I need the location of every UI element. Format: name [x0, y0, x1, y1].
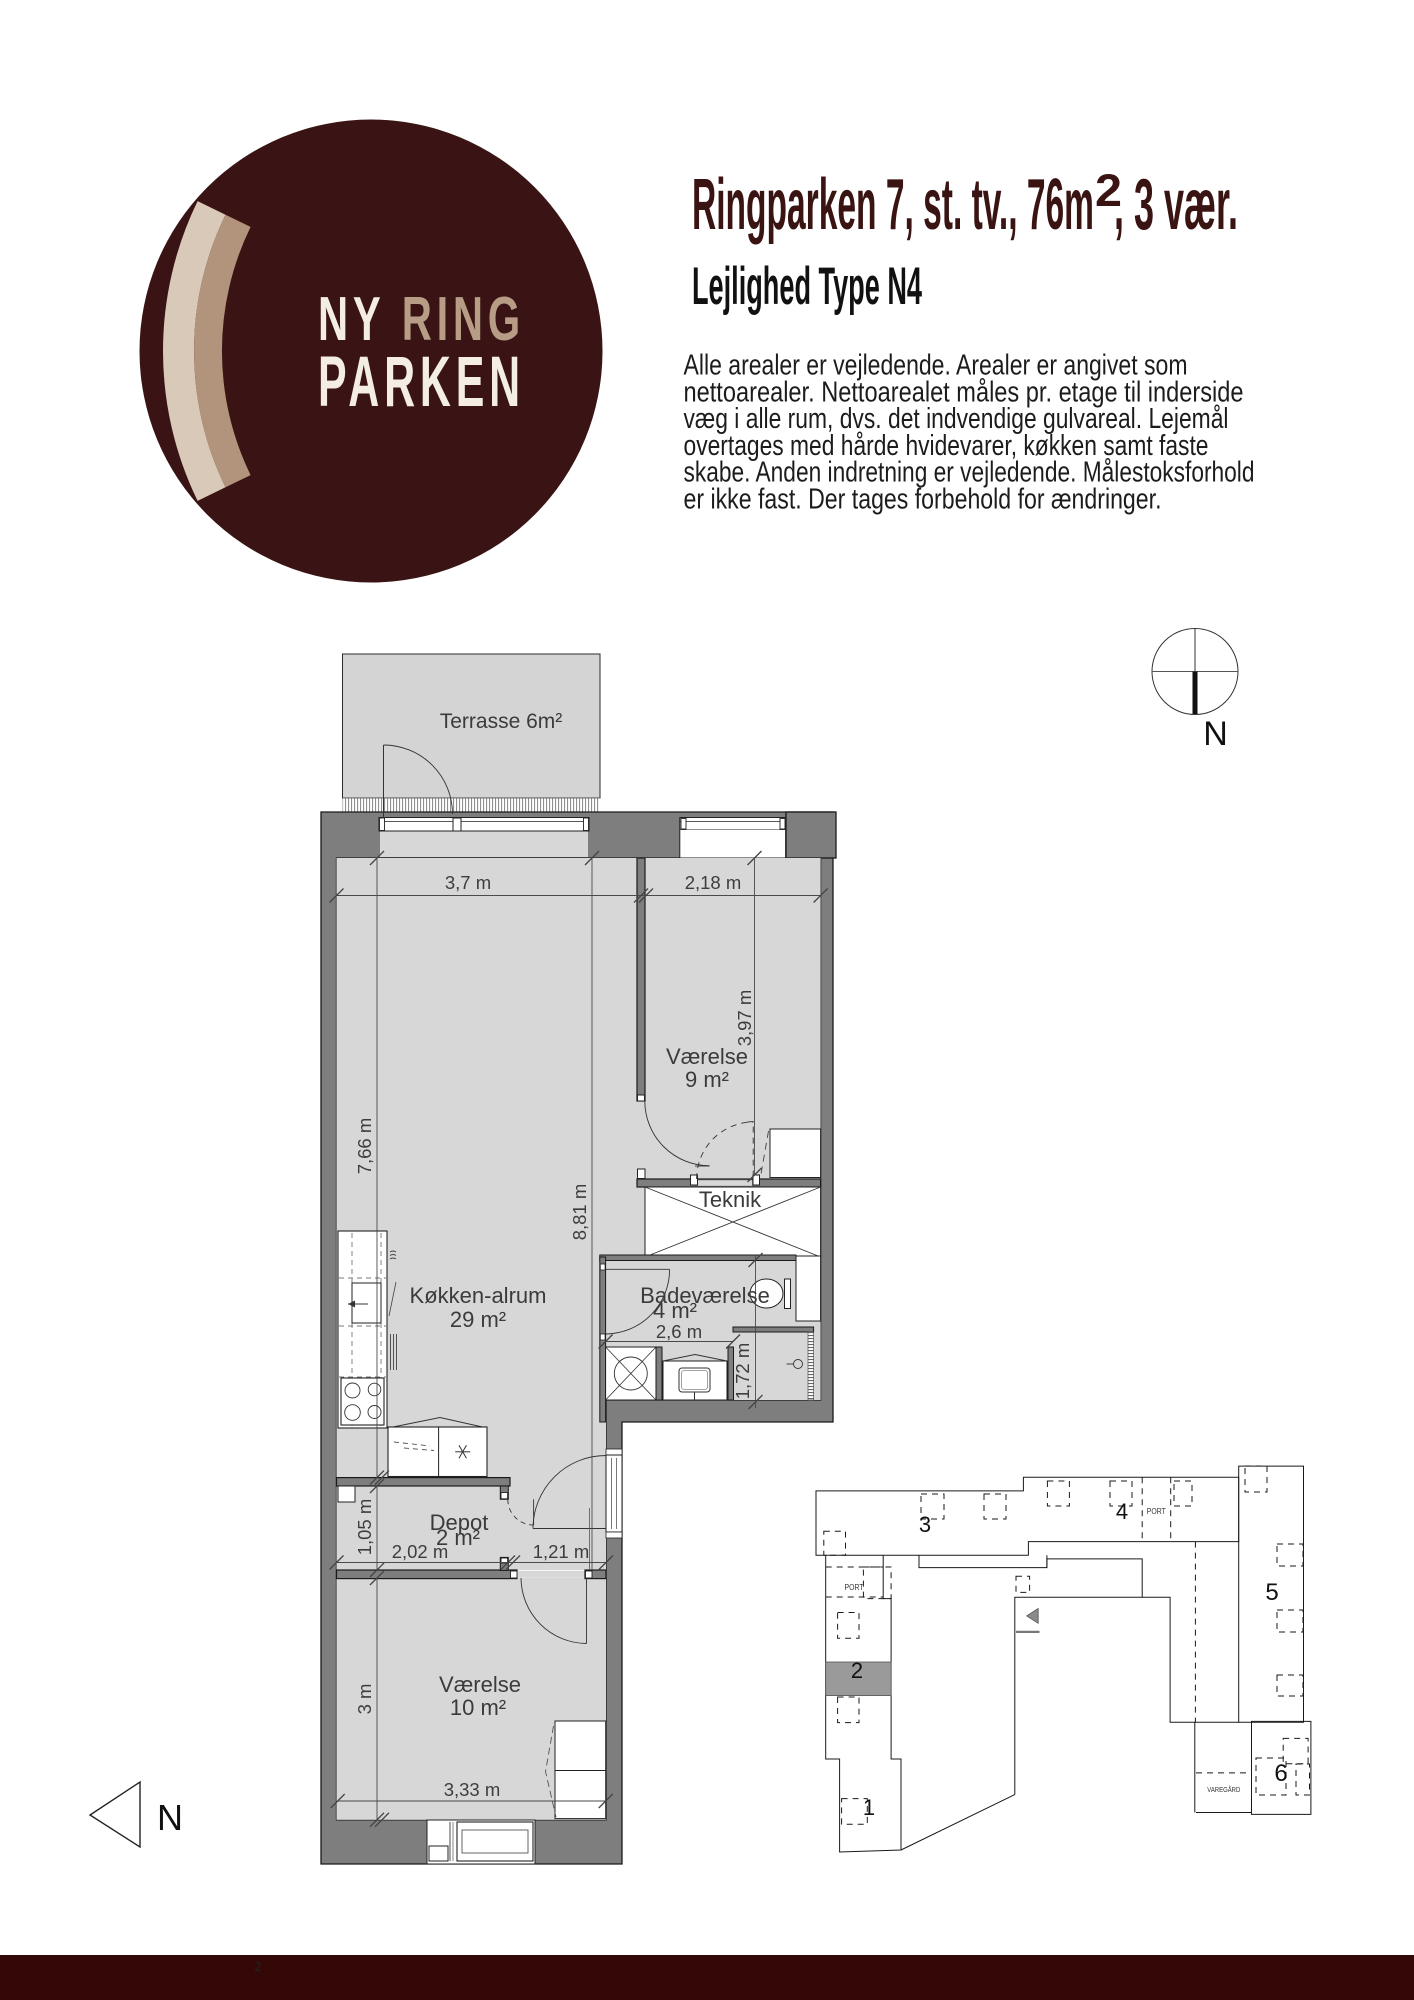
svg-text:3,33 m: 3,33 m: [444, 1779, 501, 1800]
svg-text:Terrasse 6m²: Terrasse 6m²: [440, 710, 563, 733]
svg-text:Teknik: Teknik: [699, 1187, 762, 1212]
svg-text:6: 6: [1274, 1760, 1287, 1787]
svg-text:4 m²: 4 m²: [653, 1298, 697, 1323]
svg-text:2: 2: [851, 1658, 863, 1683]
svg-text:PORT: PORT: [1147, 1507, 1166, 1516]
svg-text:1,72 m: 1,72 m: [732, 1343, 753, 1400]
svg-text:2: 2: [254, 1959, 261, 1974]
svg-text:Værelse: Værelse: [666, 1044, 748, 1069]
svg-text:7,66 m: 7,66 m: [354, 1118, 375, 1175]
svg-text:3: 3: [919, 1512, 931, 1537]
svg-text:2,6 m: 2,6 m: [656, 1321, 702, 1342]
svg-text:3,97 m: 3,97 m: [734, 990, 755, 1047]
svg-text:8,81 m: 8,81 m: [569, 1184, 590, 1241]
svg-text:5: 5: [1265, 1579, 1278, 1606]
svg-text:1,21 m: 1,21 m: [533, 1541, 590, 1562]
svg-text:, 3 vær.: , 3 vær.: [1114, 165, 1238, 245]
svg-text:1,05 m: 1,05 m: [354, 1499, 375, 1556]
svg-text:Ringparken 7, st. tv., 76m: Ringparken 7, st. tv., 76m: [692, 165, 1094, 245]
svg-text:3,7 m: 3,7 m: [445, 872, 491, 893]
svg-text:29 m²: 29 m²: [450, 1307, 506, 1332]
svg-text:3 m: 3 m: [354, 1684, 375, 1715]
svg-text:PORT: PORT: [845, 1583, 864, 1592]
svg-text:N: N: [1203, 715, 1228, 753]
svg-text:PARKEN: PARKEN: [318, 343, 525, 422]
svg-text:Køkken-alrum: Køkken-alrum: [410, 1283, 547, 1308]
svg-text:er ikke fast. Der tages forbeh: er ikke fast. Der tages forbehold for æn…: [684, 484, 1162, 516]
svg-text:2 m²: 2 m²: [436, 1525, 480, 1550]
svg-text:2,18 m: 2,18 m: [685, 872, 742, 893]
svg-text:1: 1: [863, 1795, 875, 1820]
svg-text:9 m²: 9 m²: [685, 1067, 729, 1092]
svg-text:N: N: [157, 1797, 183, 1838]
svg-text:Lejlighed Type N4: Lejlighed Type N4: [692, 257, 922, 316]
svg-text:4: 4: [1116, 1499, 1128, 1524]
svg-text:Værelse: Værelse: [439, 1672, 521, 1697]
svg-text:10 m²: 10 m²: [450, 1695, 506, 1720]
svg-text:VAREGÅRD: VAREGÅRD: [1207, 1785, 1240, 1794]
